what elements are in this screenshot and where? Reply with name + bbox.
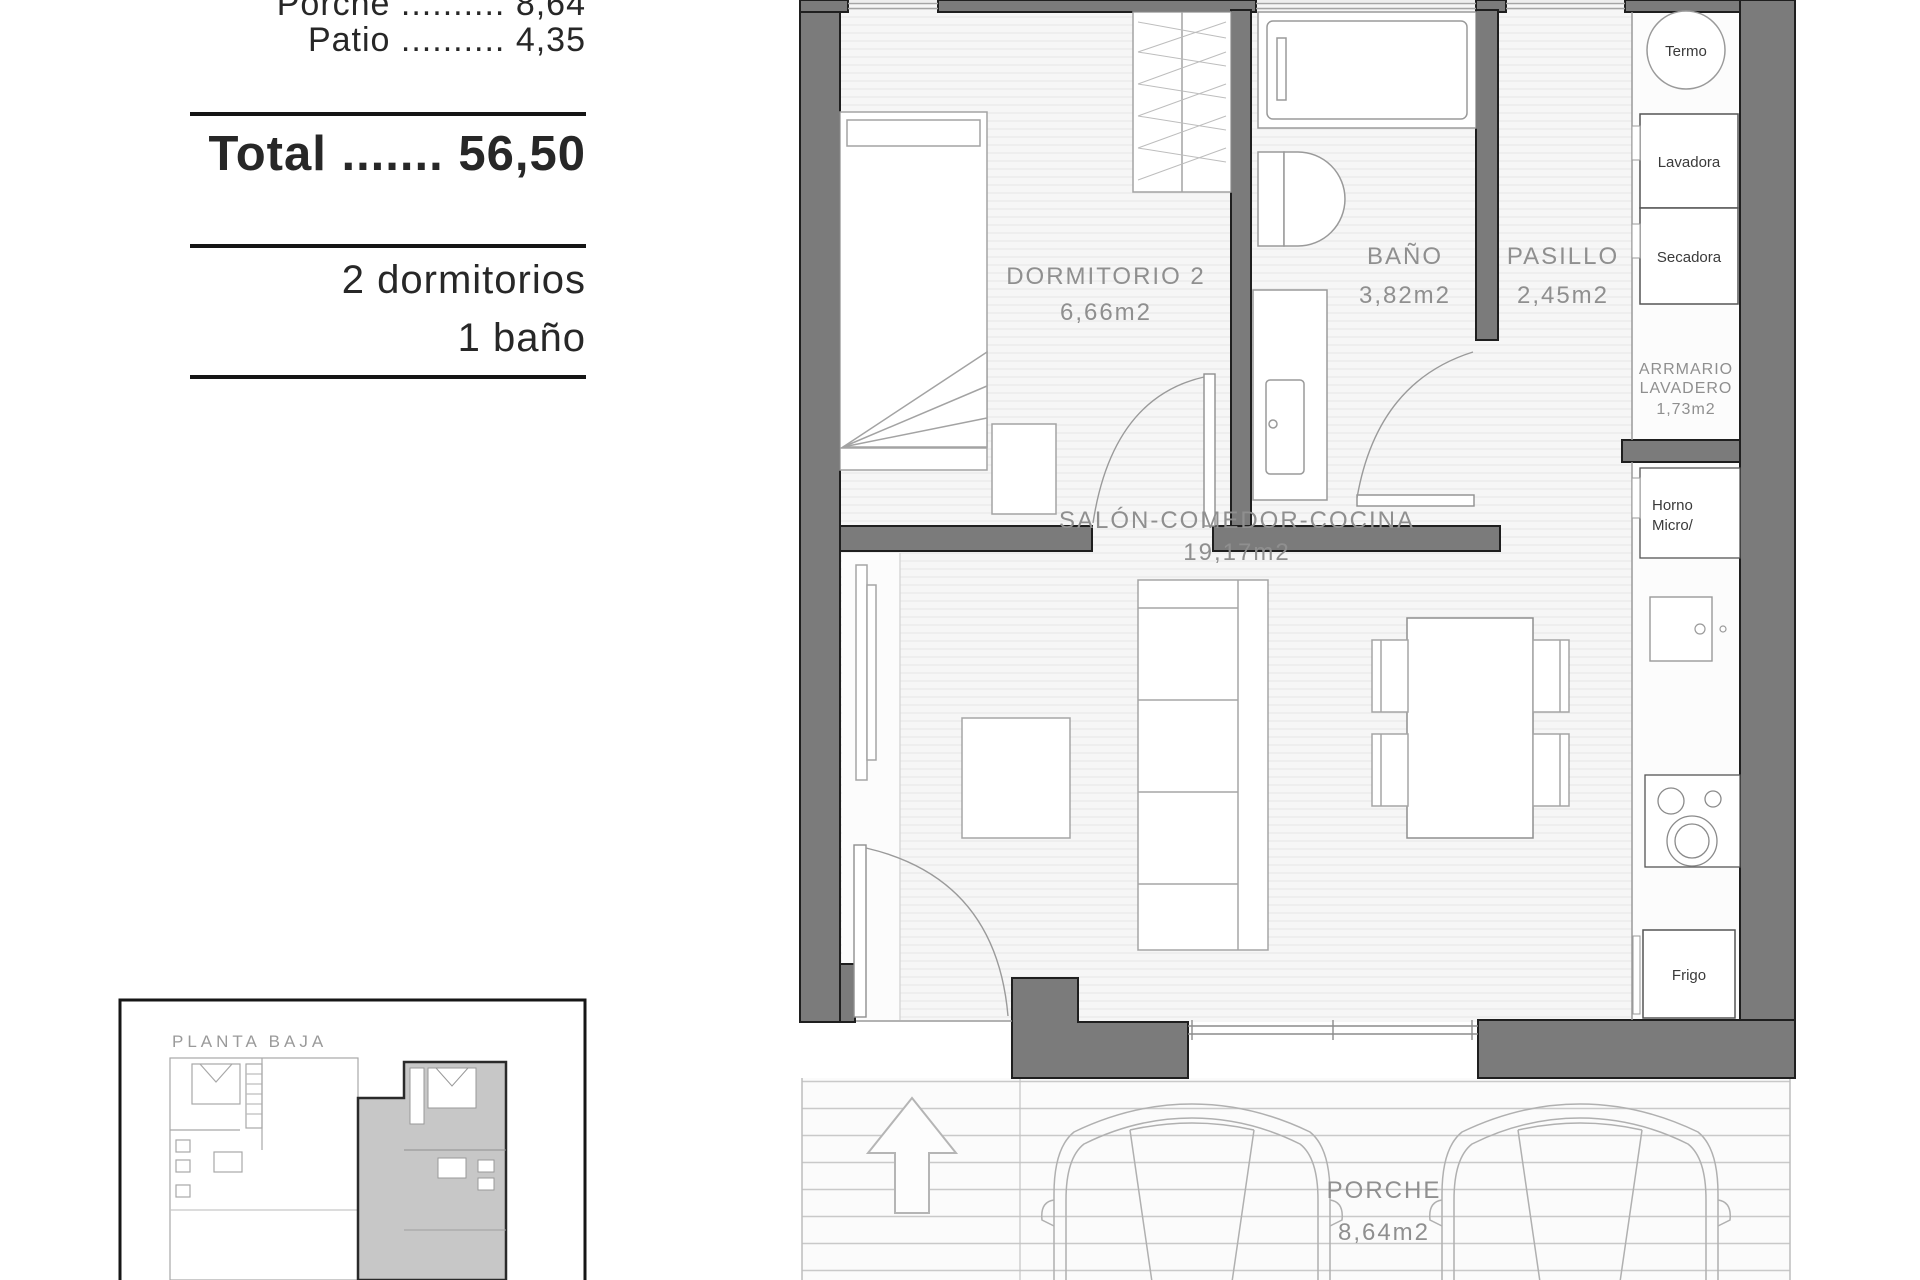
label-salon: SALÓN-COMEDOR-COCINA — [1059, 507, 1415, 534]
bed-pillow — [847, 120, 980, 146]
wall-bottom-right — [1478, 1020, 1795, 1078]
label-horno-line1: Horno — [1652, 497, 1693, 514]
keyplan-unit-left — [170, 1058, 358, 1280]
label-salon-area: 19,17m2 — [1183, 539, 1290, 566]
dining-chair — [1533, 734, 1569, 806]
wall-right — [1740, 0, 1795, 1078]
dining-chair — [1533, 640, 1569, 712]
wall-bedroom-bath — [1231, 10, 1251, 551]
entrance-door-leaf — [854, 845, 866, 1017]
keyplan-title: PLANTA BAJA — [172, 1032, 327, 1051]
wall-bath-pasillo — [1476, 10, 1498, 340]
bathroom-faucet — [1269, 420, 1277, 428]
label-dormitorio2-area: 6,66m2 — [1060, 299, 1152, 326]
label-dormitorio2: DORMITORIO 2 — [1006, 263, 1206, 290]
label-porche-area: 8,64m2 — [1338, 1219, 1430, 1246]
dryer-hinge — [1632, 224, 1640, 258]
tv-panel — [856, 565, 867, 780]
dining-chair — [1372, 640, 1408, 712]
sofa — [1138, 580, 1268, 950]
floorplan-page: Porche .......... 8,64 Patio .......... … — [0, 0, 1920, 1280]
keyplan-fixture — [176, 1185, 190, 1197]
keyplan-fixture — [478, 1178, 494, 1190]
floorplan-drawing: DORMITORIO 2 6,66m2 BAÑO 3,82m2 PASILLO … — [0, 0, 1920, 1280]
label-armario-line2: LAVADERO — [1640, 380, 1733, 397]
label-horno-line2: Micro/ — [1652, 517, 1694, 534]
wall-utility-divider — [1622, 440, 1740, 462]
wall-top-segment — [800, 0, 848, 12]
dining-chair — [1372, 734, 1408, 806]
keyplan: PLANTA BAJA — [120, 1000, 585, 1280]
tv-screen — [867, 585, 876, 760]
window-salon-south — [1188, 1020, 1478, 1040]
kitchen-faucet-dot — [1720, 626, 1726, 632]
label-pasillo: PASILLO — [1507, 243, 1619, 270]
toilet-tank — [1258, 152, 1284, 246]
label-armario-area: 1,73m2 — [1656, 401, 1715, 418]
keyplan-fixture — [478, 1160, 494, 1172]
keyplan-bed-highlighted — [428, 1068, 476, 1108]
keyplan-fixture — [176, 1140, 190, 1152]
label-pasillo-area: 2,45m2 — [1517, 282, 1609, 309]
wall-left-step — [840, 964, 855, 1022]
label-termo: Termo — [1665, 43, 1707, 60]
label-bano: BAÑO — [1367, 243, 1443, 270]
oven-hinge — [1632, 478, 1640, 518]
label-armario-line1: ARRMARIO — [1639, 361, 1733, 378]
label-bano-area: 3,82m2 — [1359, 282, 1451, 309]
label-frigo: Frigo — [1672, 967, 1706, 984]
bathtub-inner — [1267, 21, 1467, 119]
label-secadora: Secadora — [1657, 249, 1722, 266]
keyplan-table — [438, 1158, 466, 1178]
wall-left — [800, 0, 840, 1022]
wall-top-segment — [938, 0, 1256, 12]
washer-hinge — [1632, 126, 1640, 160]
porch-paving — [802, 1078, 1790, 1280]
bathroom-door-leaf — [1357, 495, 1474, 506]
fridge-hinge — [1633, 936, 1640, 1014]
bedroom-door-leaf — [1204, 374, 1215, 526]
dining-table — [1407, 618, 1533, 838]
keyplan-fixture — [176, 1160, 190, 1172]
keyplan-wardrobe — [410, 1068, 424, 1124]
nightstand — [992, 424, 1056, 514]
label-lavadora: Lavadora — [1658, 154, 1721, 171]
kitchen-faucet — [1695, 624, 1705, 634]
coffee-table — [962, 718, 1070, 838]
wall-bedroom-south — [840, 526, 1092, 551]
keyplan-bed — [192, 1064, 240, 1104]
hob — [1645, 775, 1740, 867]
keyplan-table — [214, 1152, 242, 1172]
bathtub-handle — [1277, 38, 1286, 100]
label-porche: PORCHE — [1327, 1177, 1442, 1204]
